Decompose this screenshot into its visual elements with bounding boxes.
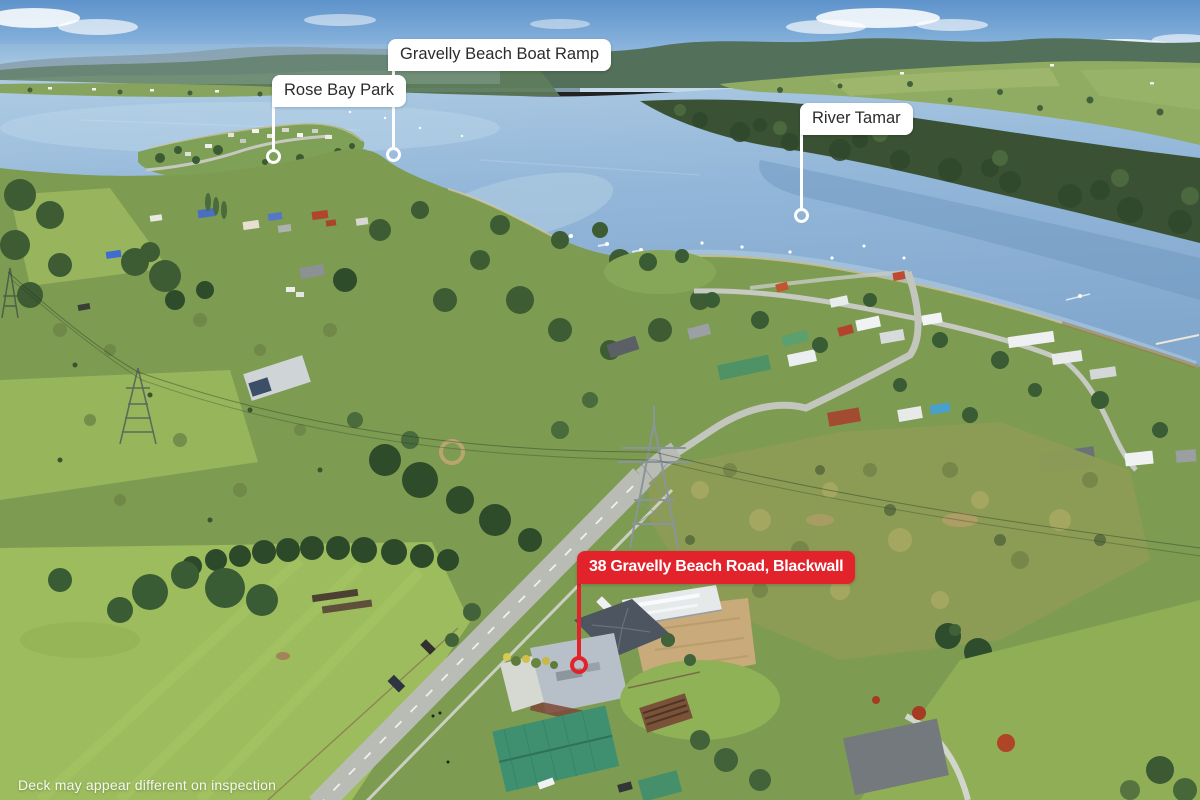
callout-label-rose-bay-park: Rose Bay Park (272, 75, 406, 107)
location-marker-icon (266, 149, 281, 164)
callout-stem (577, 583, 581, 657)
location-marker-icon (386, 147, 401, 162)
callout-label-property-address: 38 Gravelly Beach Road, Blackwall (577, 551, 855, 584)
aerial-photo-background (0, 0, 1200, 800)
location-marker-icon (794, 208, 809, 223)
callout-stem (800, 133, 803, 209)
aerial-photo: Rose Bay Park Gravelly Beach Boat Ramp R… (0, 0, 1200, 800)
disclaimer-text: Deck may appear different on inspection (18, 777, 276, 793)
callout-label-river-tamar: River Tamar (800, 103, 913, 135)
property-marker-icon (570, 656, 588, 674)
callout-label-boat-ramp: Gravelly Beach Boat Ramp (388, 39, 611, 71)
callout-stem (272, 104, 275, 151)
